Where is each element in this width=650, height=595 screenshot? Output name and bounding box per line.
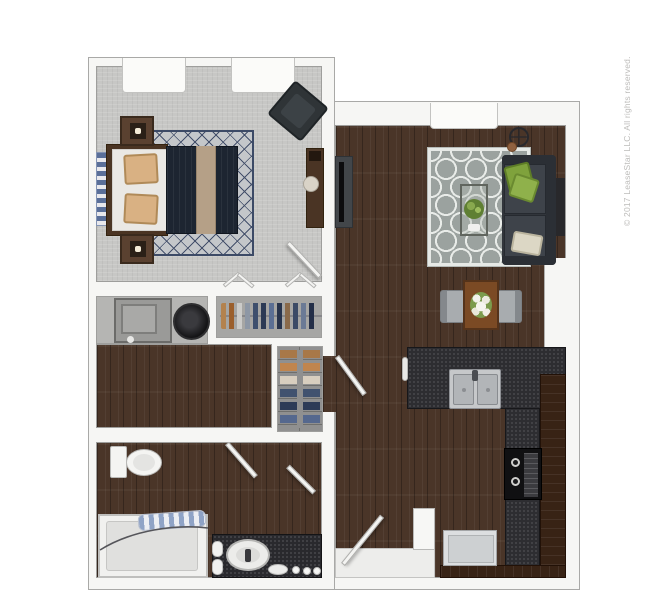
bedroom-window-icon	[231, 58, 295, 93]
washer-lid	[121, 304, 157, 334]
kitchen-cabinets	[440, 565, 566, 578]
copyright-watermark: © 2017 LeaseStar LLC. All rights reserve…	[622, 30, 632, 226]
sink-basin	[477, 374, 498, 405]
wall-console	[556, 178, 565, 236]
stove-knob	[511, 458, 520, 467]
bed-pillow	[123, 153, 159, 185]
floor-plan-image: © 2017 LeaseStar LLC. All rights reserve…	[0, 0, 650, 595]
shower-curtain-rod-icon	[98, 512, 210, 556]
plant-icon	[464, 199, 484, 219]
table-lamp-icon	[130, 241, 146, 257]
nightstand	[120, 116, 154, 146]
bathroom-faucet-icon	[245, 549, 251, 562]
bed-throw-blanket	[196, 146, 216, 234]
toilet-tank	[110, 446, 127, 478]
bed-pillow	[123, 193, 159, 225]
toilet-bowl	[126, 449, 162, 476]
kitchen-cabinets	[540, 374, 566, 578]
bedroom-window-icon	[122, 58, 186, 93]
living-room-window-icon	[430, 103, 498, 129]
soap-dish	[268, 564, 288, 575]
table-lamp-icon	[130, 123, 146, 139]
washer	[114, 298, 172, 343]
stove	[504, 448, 542, 500]
candle-icon	[313, 567, 321, 575]
sink-basin	[453, 374, 474, 405]
tv-stand	[335, 156, 353, 228]
towel-roll	[212, 559, 223, 575]
towel-roll	[212, 541, 223, 557]
dresser-decor	[309, 151, 321, 161]
dining-chair	[440, 290, 465, 323]
candle-icon	[303, 567, 311, 575]
hallway-floor	[96, 344, 272, 428]
entry-wall	[413, 508, 435, 550]
dining-chair	[497, 290, 522, 323]
flower-centerpiece	[470, 292, 492, 318]
candle-icon	[468, 224, 480, 231]
decor-plate	[303, 176, 319, 192]
kitchen-faucet-icon	[472, 370, 478, 381]
sofa-armrest	[502, 256, 556, 265]
tv-icon	[339, 162, 344, 222]
sofa-backrest	[546, 161, 556, 259]
dryer	[173, 303, 210, 340]
hanging-clothes	[221, 303, 321, 329]
stove-grate	[524, 453, 538, 497]
washer-knob	[127, 336, 134, 343]
refrigerator	[443, 530, 497, 566]
floor-lamp-icon	[505, 126, 533, 154]
stove-knob	[511, 477, 520, 486]
dishwasher-handle	[402, 357, 408, 381]
pantry-shelf-items	[280, 350, 320, 428]
candle-icon	[292, 566, 300, 574]
nightstand	[120, 234, 154, 264]
pantry-doorway-floor	[323, 356, 336, 412]
